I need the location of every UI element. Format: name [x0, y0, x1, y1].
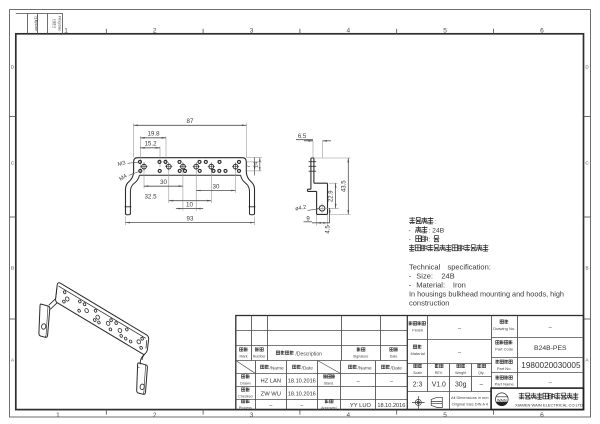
svg-text:日期/Date: 日期/Date	[34, 16, 39, 31]
svg-text:Approved: Approved	[321, 406, 336, 410]
svg-text:B: B	[11, 266, 14, 271]
svg-text:YY LUO: YY LUO	[350, 403, 372, 409]
svg-text::: :	[434, 219, 436, 226]
svg-text:REV.: REV.	[435, 371, 443, 375]
svg-text:24B: 24B	[441, 271, 454, 280]
svg-text:2: 2	[153, 412, 157, 419]
svg-text:18.10.2016: 18.10.2016	[377, 403, 405, 409]
svg-text:18.10.2016: 18.10.2016	[288, 379, 316, 385]
svg-text:22.9: 22.9	[329, 190, 335, 202]
svg-text:XIAMEN WAIN ELECTRICAL CO.LTD: XIAMEN WAIN ELECTRICAL CO.LTD	[515, 402, 583, 407]
svg-text:30: 30	[213, 183, 220, 190]
svg-text:Filing Date: Filing Date	[57, 16, 61, 31]
svg-text:Drawn: Drawn	[240, 382, 250, 386]
svg-text:ZW WU: ZW WU	[261, 392, 281, 398]
svg-text:Qty.: Qty.	[478, 371, 484, 375]
svg-text:3: 3	[250, 28, 254, 35]
svg-text:Mark: Mark	[240, 355, 248, 359]
svg-text:Finish: Finish	[412, 328, 423, 333]
svg-text:87: 87	[187, 118, 194, 125]
svg-text:Number: Number	[253, 355, 267, 359]
svg-text:B24B-PES: B24B-PES	[534, 345, 567, 352]
svg-text:4.5: 4.5	[325, 225, 331, 234]
svg-text:: 24B: : 24B	[428, 227, 444, 234]
svg-text:Scale: Scale	[413, 371, 422, 375]
svg-text:93: 93	[187, 215, 194, 222]
svg-text:Size:: Size:	[416, 271, 433, 280]
svg-text:19.8: 19.8	[147, 131, 160, 138]
svg-text:14: 14	[254, 162, 260, 168]
svg-text:All Dimensions in mm: All Dimensions in mm	[451, 395, 488, 400]
svg-text:10: 10	[186, 201, 193, 208]
svg-text:1: 1	[56, 412, 60, 419]
svg-text:32.5: 32.5	[144, 194, 157, 201]
svg-text:construction: construction	[409, 299, 449, 308]
svg-text:/Date: /Date	[302, 366, 314, 372]
svg-text:Material:: Material:	[416, 281, 445, 290]
svg-text::: :	[428, 236, 430, 243]
svg-text:In housings bulkhead mounti: In housings bulkhead mounting and hoods,…	[409, 290, 564, 299]
svg-text:-: -	[409, 227, 411, 234]
svg-text:归档日: 归档日	[52, 19, 57, 29]
svg-text:-: -	[409, 236, 411, 243]
svg-text:Date: Date	[390, 355, 398, 359]
svg-text:5: 5	[443, 412, 447, 419]
svg-text:HZ LAN: HZ LAN	[260, 379, 281, 385]
svg-text:Checked: Checked	[238, 395, 252, 399]
svg-text:Drawing No.: Drawing No.	[493, 326, 515, 331]
svg-text:1: 1	[64, 28, 68, 35]
svg-text:/Description: /Description	[296, 351, 323, 357]
svg-text:18.10.2016: 18.10.2016	[288, 392, 316, 398]
svg-text:4: 4	[346, 412, 350, 419]
svg-text:Original Size DIN A 4: Original Size DIN A 4	[452, 401, 489, 406]
svg-text:V1.0: V1.0	[432, 382, 446, 389]
svg-text:Part Code: Part Code	[495, 347, 514, 352]
svg-text:2: 2	[153, 28, 157, 35]
svg-text:30: 30	[160, 179, 167, 186]
svg-text:Signature: Signature	[353, 355, 368, 359]
svg-text:2:3: 2:3	[413, 382, 423, 389]
svg-text:WAIN: WAIN	[497, 398, 507, 402]
svg-text:Material: Material	[410, 351, 424, 356]
svg-text:specification:: specification:	[448, 262, 491, 271]
svg-text:5: 5	[443, 28, 447, 35]
svg-text:/Date: /Date	[391, 366, 403, 372]
svg-text:Stand.: Stand.	[324, 382, 334, 386]
svg-text:B: B	[585, 266, 588, 271]
svg-text:Process: Process	[239, 406, 252, 410]
svg-text:Weight: Weight	[455, 371, 466, 375]
svg-text:4: 4	[346, 28, 350, 35]
svg-text:6: 6	[540, 28, 544, 35]
svg-text:1980020030005: 1980020030005	[521, 361, 581, 370]
svg-text:/Name: /Name	[270, 366, 284, 372]
svg-text:30g: 30g	[455, 382, 467, 389]
svg-text:Part Name: Part Name	[495, 382, 515, 387]
svg-text:Iron: Iron	[453, 281, 466, 290]
svg-text:Technical: Technical	[409, 262, 441, 271]
svg-text:43.5: 43.5	[341, 180, 347, 192]
svg-text:3: 3	[250, 412, 254, 419]
svg-text:Part No.: Part No.	[497, 366, 512, 371]
svg-text:6: 6	[540, 412, 544, 419]
svg-text:7: 7	[246, 165, 252, 168]
svg-text:/Name: /Name	[358, 366, 372, 372]
svg-text:6.5: 6.5	[298, 134, 307, 140]
svg-text:15.2: 15.2	[144, 141, 157, 148]
